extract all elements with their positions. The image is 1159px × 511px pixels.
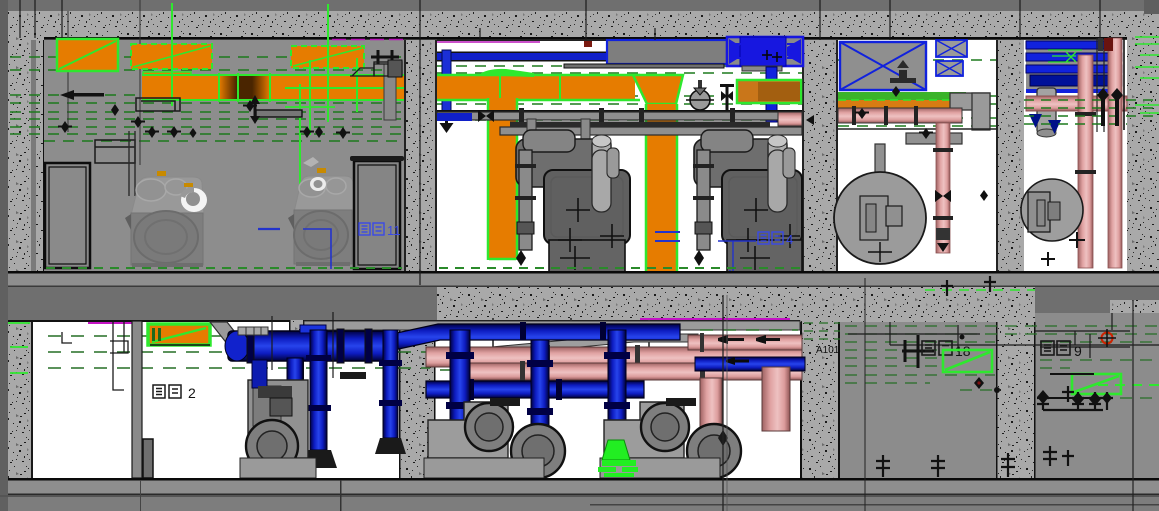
svg-text:2: 2	[188, 385, 196, 401]
svg-text:11: 11	[387, 223, 401, 238]
svg-text:4: 4	[786, 232, 793, 247]
svg-text:A101: A101	[816, 345, 840, 356]
svg-text:9: 9	[1074, 343, 1082, 359]
